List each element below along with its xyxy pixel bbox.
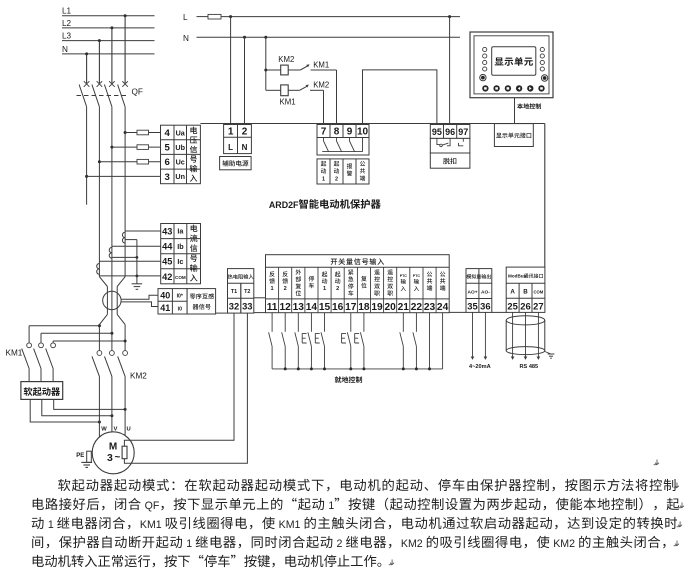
svg-text:N: N [62, 45, 68, 54]
svg-text:KM2: KM2 [313, 81, 329, 90]
svg-text:2: 2 [336, 286, 339, 292]
svg-text:M: M [109, 442, 117, 453]
svg-text:22: 22 [411, 302, 423, 313]
svg-text:5: 5 [165, 143, 171, 154]
svg-text:U: U [127, 427, 131, 433]
svg-text:3: 3 [165, 172, 170, 183]
svg-text:23: 23 [424, 302, 436, 313]
svg-text:KM1: KM1 [6, 349, 23, 358]
svg-text:KM1: KM1 [280, 97, 296, 106]
svg-text:26: 26 [520, 301, 530, 312]
svg-text:21: 21 [398, 302, 410, 313]
svg-text:12: 12 [280, 302, 292, 313]
svg-text:43: 43 [162, 226, 172, 236]
svg-text:7: 7 [321, 127, 327, 138]
svg-text:QF: QF [132, 88, 143, 97]
svg-text:KM1: KM1 [313, 60, 329, 69]
svg-text:KM2: KM2 [278, 55, 294, 64]
svg-text:PTC: PTC [413, 274, 421, 278]
svg-text:L: L [228, 143, 233, 152]
svg-text:L2: L2 [62, 19, 72, 28]
svg-text:13: 13 [293, 302, 305, 313]
svg-text:4: 4 [165, 128, 171, 139]
svg-text:41: 41 [160, 303, 170, 313]
svg-text:10: 10 [357, 127, 369, 138]
svg-text:~: ~ [115, 452, 121, 463]
svg-text:PE: PE [76, 453, 84, 459]
svg-text:Uc: Uc [176, 158, 185, 167]
svg-text:33: 33 [242, 301, 252, 312]
svg-text:L3: L3 [62, 32, 72, 41]
svg-text:B: B [523, 288, 528, 295]
svg-text:45: 45 [162, 257, 172, 267]
svg-text:ARD2F: ARD2F [269, 200, 299, 210]
svg-text:1: 1 [45, 519, 57, 531]
svg-text:97: 97 [458, 127, 468, 137]
svg-text:1: 1 [323, 286, 326, 292]
svg-text:24: 24 [437, 302, 449, 313]
svg-text:1: 1 [322, 176, 325, 182]
svg-text:1: 1 [228, 127, 234, 138]
svg-text:RS 485: RS 485 [520, 364, 539, 370]
svg-text:2: 2 [284, 286, 287, 292]
svg-text:27: 27 [533, 301, 543, 312]
svg-text:95: 95 [432, 127, 442, 137]
svg-text:KM1: KM1 [276, 519, 304, 531]
svg-text:1: 1 [325, 500, 334, 512]
svg-text:11: 11 [267, 302, 278, 313]
svg-text:KM1: KM1 [140, 519, 165, 531]
svg-text:AO-: AO- [481, 289, 490, 295]
svg-text:2: 2 [335, 176, 338, 182]
svg-text:8: 8 [334, 127, 340, 138]
svg-text:1: 1 [183, 538, 195, 550]
svg-text:17: 17 [345, 302, 357, 313]
svg-text:Ic: Ic [177, 257, 183, 266]
svg-text:Ib: Ib [177, 242, 184, 251]
svg-text:L1: L1 [62, 7, 72, 16]
svg-text:14: 14 [306, 302, 318, 313]
svg-text:9: 9 [347, 127, 353, 138]
svg-text:KM2: KM2 [130, 372, 147, 381]
svg-text:Ub: Ub [175, 143, 185, 152]
svg-text:42: 42 [162, 272, 172, 282]
svg-text:COM: COM [534, 289, 544, 294]
svg-text:2: 2 [334, 538, 346, 550]
svg-text:19: 19 [371, 302, 383, 313]
svg-text:L: L [183, 13, 188, 22]
svg-text:32: 32 [229, 301, 239, 312]
svg-text:N: N [242, 143, 248, 152]
svg-text:25: 25 [507, 301, 517, 312]
svg-text:16: 16 [332, 302, 344, 313]
svg-text:4~20mA: 4~20mA [469, 364, 491, 370]
svg-text:1: 1 [271, 286, 274, 292]
svg-text:I0: I0 [178, 306, 182, 312]
svg-text:KM2: KM2 [550, 538, 578, 550]
svg-text:35: 35 [467, 301, 477, 312]
svg-text:Ua: Ua [176, 128, 186, 137]
svg-text:T1: T1 [231, 289, 237, 295]
svg-text:A: A [510, 288, 515, 295]
svg-text:40: 40 [160, 290, 170, 300]
svg-text:Un: Un [175, 172, 185, 181]
svg-text:15: 15 [319, 302, 331, 313]
svg-text:Ia: Ia [177, 227, 184, 236]
svg-text:18: 18 [358, 302, 370, 313]
svg-text:3: 3 [107, 452, 113, 464]
svg-text:2: 2 [242, 127, 248, 138]
svg-text:COM: COM [175, 275, 186, 280]
svg-text:T2: T2 [244, 289, 250, 295]
svg-text:AO+: AO+ [468, 289, 478, 295]
svg-text:KM2: KM2 [401, 538, 426, 550]
svg-text:W: W [101, 427, 107, 433]
svg-text:6: 6 [165, 157, 170, 168]
svg-text:N: N [183, 34, 189, 43]
svg-text:QF: QF [142, 500, 160, 512]
svg-text:PTC: PTC [400, 274, 408, 278]
svg-text:96: 96 [445, 127, 455, 137]
svg-text:20: 20 [385, 302, 397, 313]
svg-text:44: 44 [162, 242, 173, 252]
svg-text:36: 36 [480, 301, 490, 312]
svg-text:I0*: I0* [177, 294, 184, 300]
